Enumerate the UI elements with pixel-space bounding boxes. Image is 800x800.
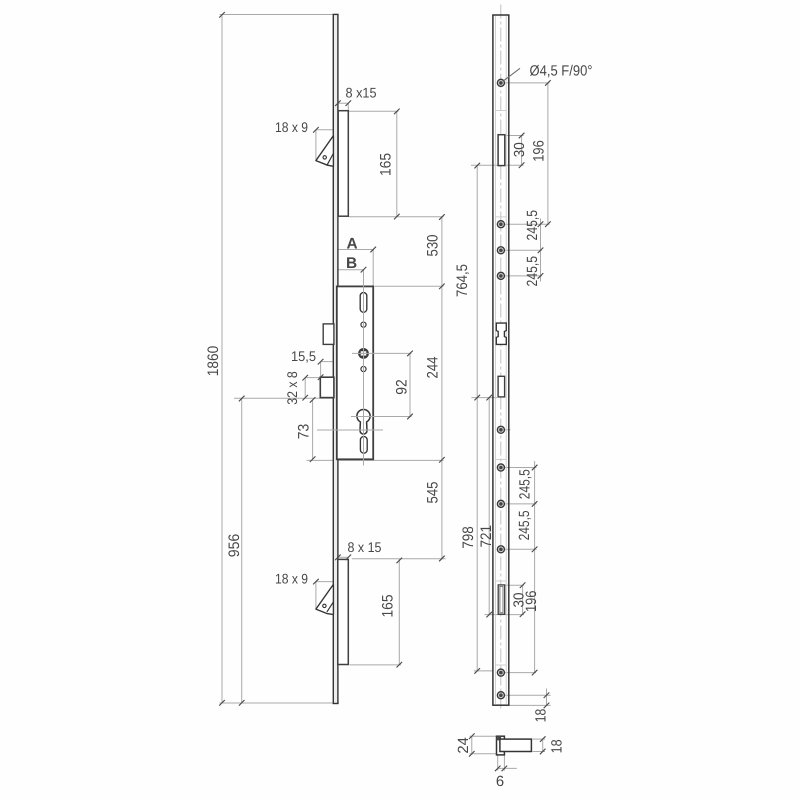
svg-text:Ø4,5 F/90°: Ø4,5 F/90° [530,63,593,79]
svg-text:1860: 1860 [205,346,222,377]
svg-text:8 x15: 8 x15 [346,84,377,100]
svg-text:196: 196 [523,591,540,613]
svg-text:165: 165 [378,153,395,176]
svg-text:6: 6 [496,774,504,790]
svg-text:245,5: 245,5 [517,510,533,540]
svg-text:73: 73 [296,424,313,440]
svg-text:8 x 15: 8 x 15 [348,539,382,555]
svg-text:32 x 8: 32 x 8 [284,371,300,405]
svg-text:18 x 9: 18 x 9 [275,570,308,586]
svg-text:245,5: 245,5 [517,469,533,499]
svg-text:24: 24 [456,737,472,754]
svg-text:764,5: 764,5 [454,264,471,297]
svg-text:18: 18 [533,709,549,723]
svg-text:244: 244 [424,357,441,379]
svg-text:18 x 9: 18 x 9 [275,119,308,135]
svg-text:245,5: 245,5 [525,256,541,287]
svg-text:30: 30 [512,142,528,157]
svg-text:721: 721 [478,525,495,548]
svg-text:A: A [346,235,357,252]
svg-text:15,5: 15,5 [291,348,316,364]
svg-text:92: 92 [393,379,410,395]
svg-text:545: 545 [424,482,441,504]
svg-text:196: 196 [531,140,548,162]
svg-text:18: 18 [549,739,565,753]
svg-text:530: 530 [424,235,441,257]
svg-text:165: 165 [379,595,396,618]
svg-text:B: B [346,255,357,272]
svg-text:798: 798 [460,526,477,549]
svg-text:245,5: 245,5 [525,210,541,241]
svg-text:956: 956 [226,534,243,558]
